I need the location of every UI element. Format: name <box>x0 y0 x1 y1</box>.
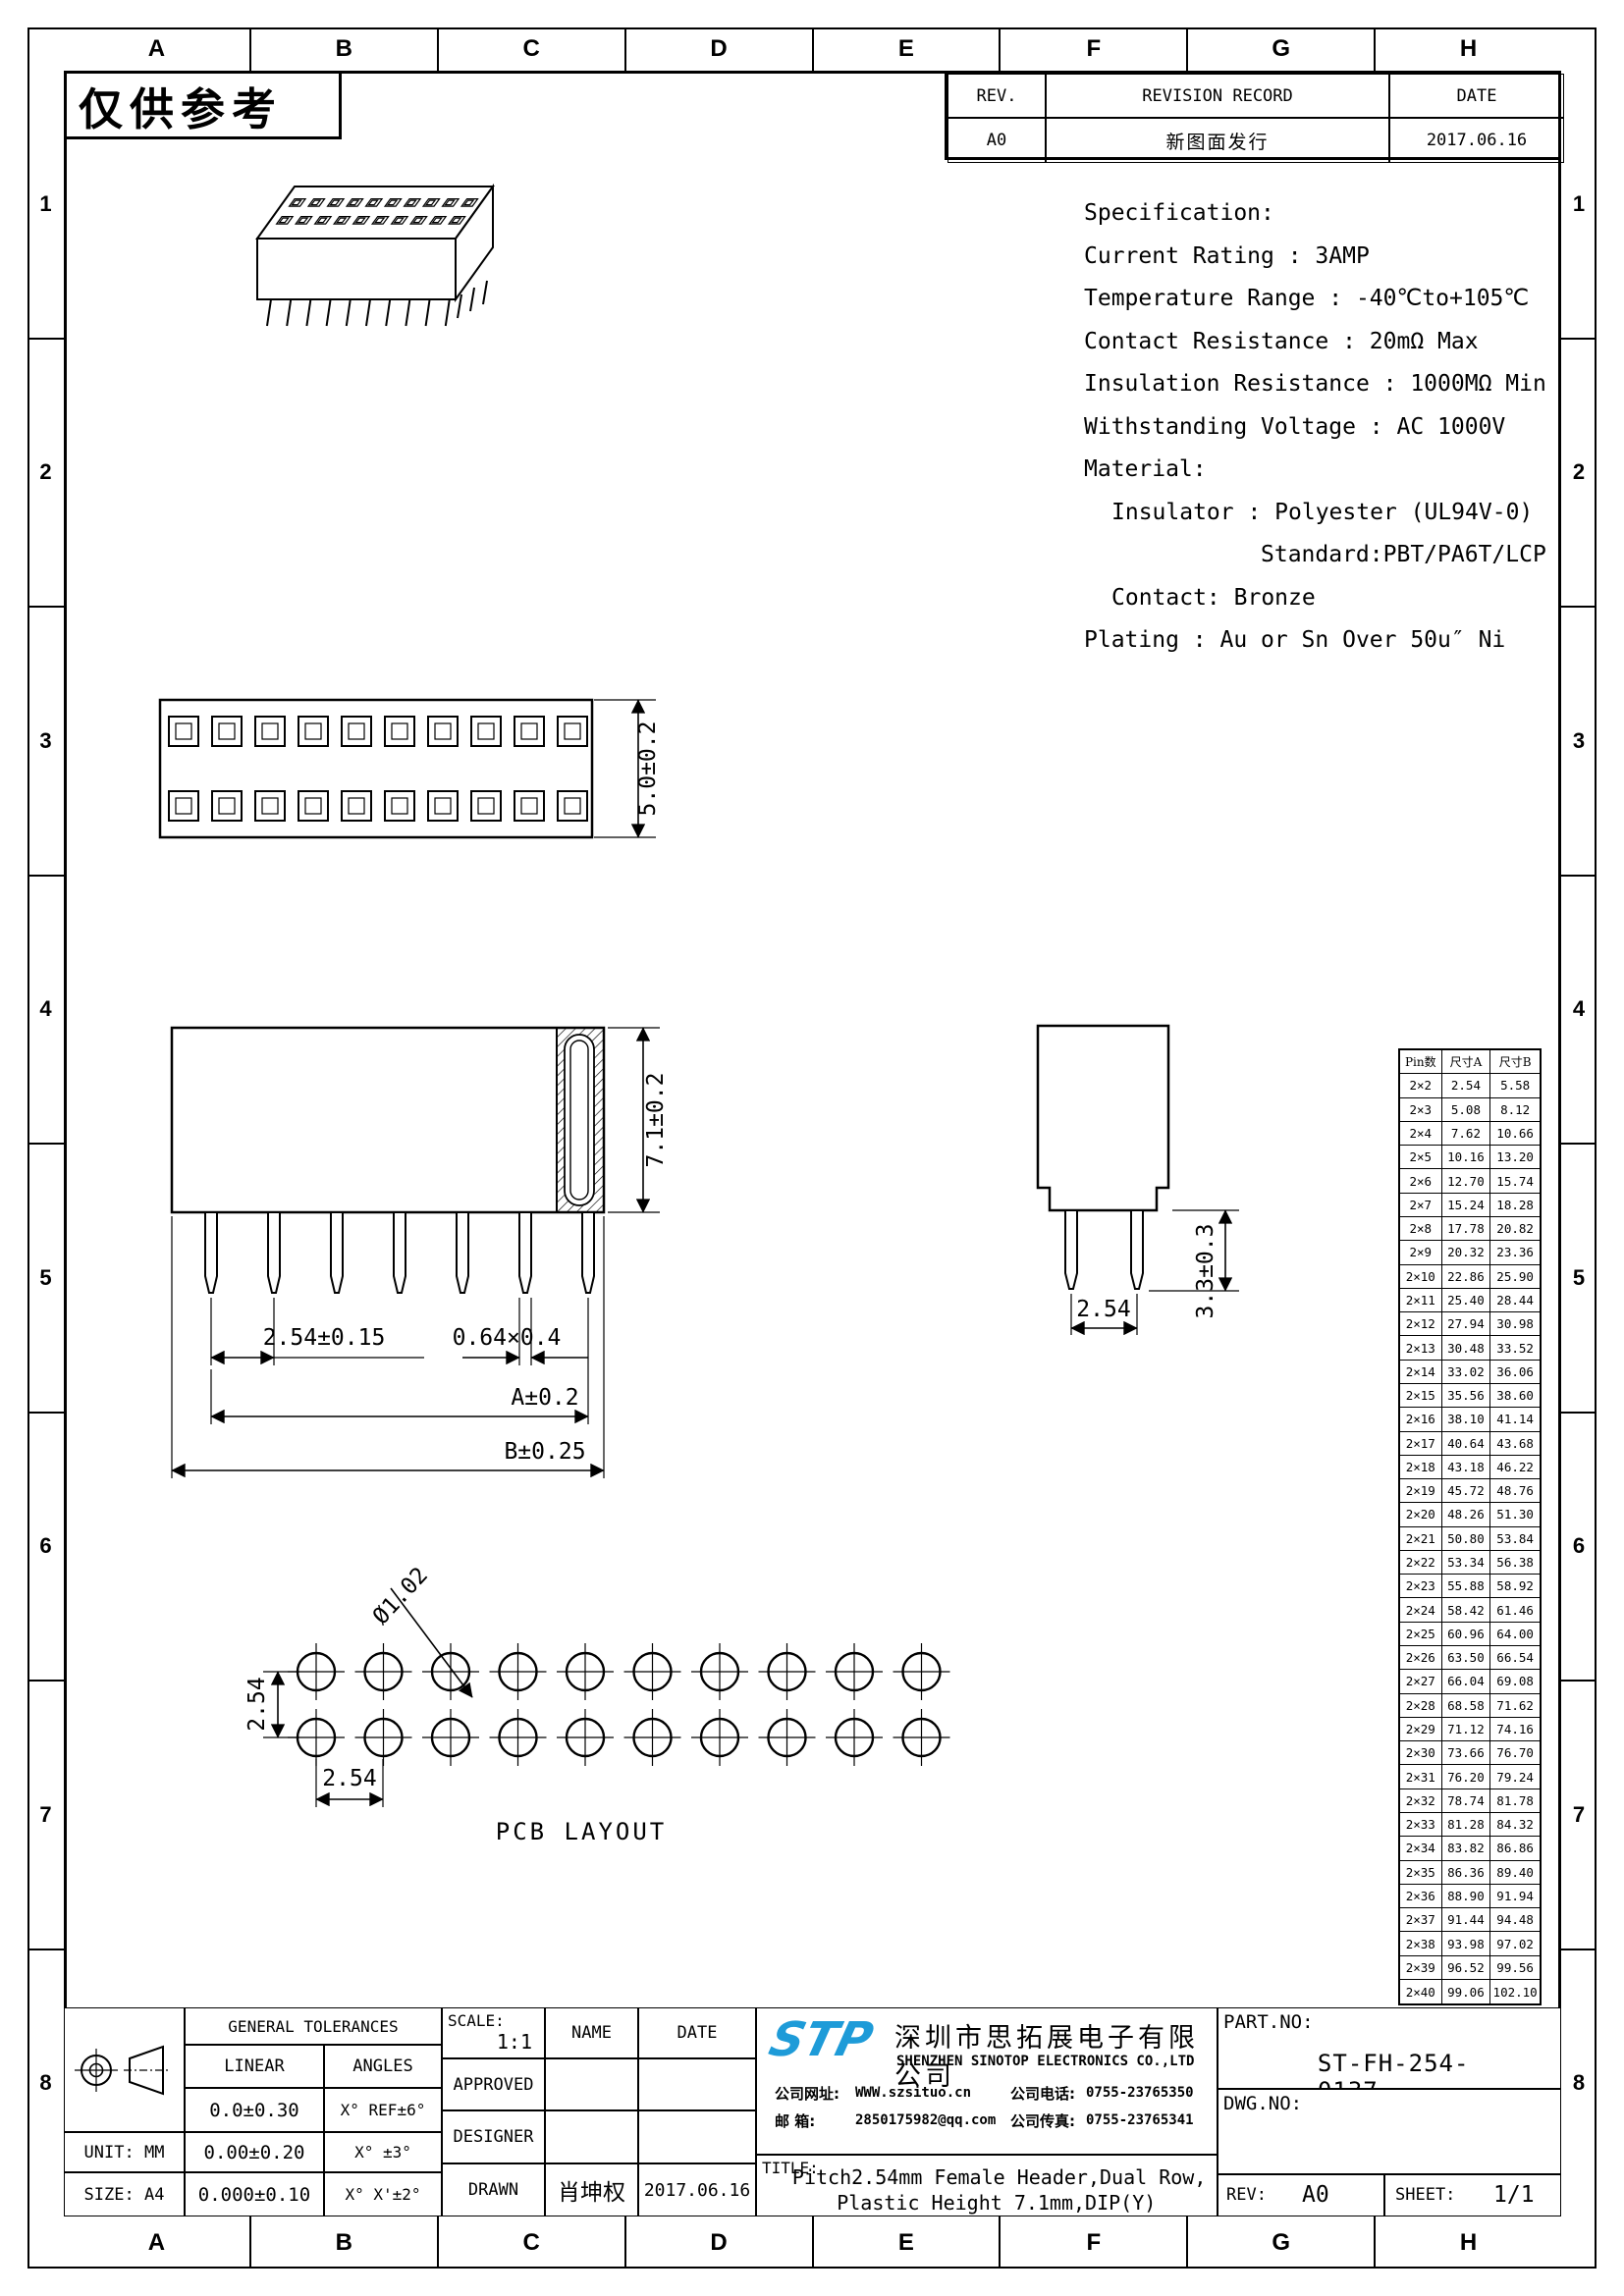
drawing-sheet: ABCDEFGH ABCDEFGH 12345678 12345678 仅供参考… <box>0 0 1624 2296</box>
front-section-view <box>172 1028 660 1478</box>
drawn-date: 2017.06.16 <box>638 2163 756 2216</box>
title-box: TITLE: Pitch2.54mm Female Header,Dual Ro… <box>756 2155 1218 2216</box>
pin-dimension-table: Pin数尺寸A尺寸B2×22.545.582×35.088.122×47.621… <box>1398 1048 1542 2005</box>
sheet-label: SHEET: <box>1395 2185 1455 2205</box>
dim-table-row: 2×1227.9430.98 <box>1400 1312 1540 1336</box>
company-block: STP 深圳市思拓展电子有限公司 SHENZHEN SINOTOP ELECTR… <box>756 2007 1218 2155</box>
dim-b: B±0.25 <box>504 1439 585 1465</box>
company-site-label: 公司网址: <box>775 2083 839 2104</box>
dwg-no-box: DWG.NO: <box>1218 2089 1561 2174</box>
top-view <box>160 700 656 837</box>
dim-table-row: 2×1022.8625.90 <box>1400 1265 1540 1289</box>
company-site: WWW.szsituo.cn <box>855 2085 971 2101</box>
size-label: SIZE: A4 <box>64 2172 185 2216</box>
unit-label: UNIT: MM <box>64 2132 185 2172</box>
part-no-label: PART.NO: <box>1223 2011 1314 2033</box>
dim-table-row: 2×3688.9091.94 <box>1400 1885 1540 1908</box>
part-no-box: PART.NO: ST-FH-254-0137 <box>1218 2007 1561 2089</box>
linear-header: LINEAR <box>185 2045 324 2088</box>
dim-pcb-col-pitch: 2.54 <box>322 1766 376 1791</box>
company-logo: STP <box>764 2012 878 2067</box>
dim-table-row: 2×1945.7248.76 <box>1400 1479 1540 1503</box>
drawn-label: DRAWN <box>442 2163 545 2216</box>
dim-table-row: 2×2458.4261.46 <box>1400 1598 1540 1622</box>
dim-table-row: 2×2663.5066.54 <box>1400 1646 1540 1670</box>
dim-table-row: 2×817.7820.82 <box>1400 1217 1540 1241</box>
dwg-no-label: DWG.NO: <box>1223 2093 1302 2114</box>
projection-symbol-cell <box>64 2007 185 2132</box>
dim-table-row: 2×2868.5871.62 <box>1400 1694 1540 1718</box>
designer-name-cell <box>545 2110 638 2163</box>
title-line2: Plastic Height 7.1mm,DIP(Y) <box>837 2191 1156 2215</box>
dim-a: A±0.2 <box>511 1385 578 1411</box>
approved-name-cell <box>545 2058 638 2110</box>
dim-pin-length: 3.3±0.3 <box>1193 1224 1218 1319</box>
tolerances-header: GENERAL TOLERANCES <box>185 2007 442 2045</box>
approved-label: APPROVED <box>442 2058 545 2110</box>
company-tel-label: 公司电话: <box>1010 2083 1075 2104</box>
scale-label: SCALE: <box>448 2011 505 2030</box>
dim-pitch: 2.54±0.15 <box>263 1325 386 1351</box>
dim-table-row: 2×3483.8286.86 <box>1400 1837 1540 1860</box>
dim-table-row: 2×1125.4028.44 <box>1400 1289 1540 1312</box>
pcb-layout-caption: PCB LAYOUT <box>496 1818 668 1845</box>
company-fax-label: 公司传真: <box>1010 2110 1075 2131</box>
scale-value: 1:1 <box>497 2030 532 2054</box>
rev-label: REV: <box>1226 2185 1267 2205</box>
dim-table-row: 2×510.1613.20 <box>1400 1146 1540 1169</box>
dim-table-row: 2×1330.4833.52 <box>1400 1336 1540 1360</box>
dim-side-pitch: 2.54 <box>1076 1297 1130 1322</box>
dim-table-row: 2×22.545.58 <box>1400 1074 1540 1097</box>
company-mail-label: 邮 箱: <box>775 2110 815 2131</box>
dim-table-row: 2×2355.8858.92 <box>1400 1575 1540 1598</box>
dim-table-row: 2×1638.1041.14 <box>1400 1408 1540 1431</box>
dim-table-header: Pin数尺寸A尺寸B <box>1400 1050 1540 1074</box>
tolerance-linear-2: 0.00±0.20 <box>185 2132 324 2172</box>
company-fax: 0755-23765341 <box>1086 2112 1194 2128</box>
sheet-box: SHEET: 1/1 <box>1384 2174 1561 2216</box>
dim-table-row: 2×3073.6676.70 <box>1400 1741 1540 1765</box>
dim-table-row: 2×2766.0469.08 <box>1400 1670 1540 1693</box>
dim-table-row: 2×3278.7481.78 <box>1400 1789 1540 1813</box>
dim-table-row: 2×3586.3689.40 <box>1400 1861 1540 1885</box>
rev-box: REV: A0 <box>1218 2174 1384 2216</box>
tolerance-angle-1: X° REF±6° <box>324 2088 442 2132</box>
dim-table-row: 2×47.6210.66 <box>1400 1122 1540 1146</box>
dim-table-row: 2×2048.2651.30 <box>1400 1503 1540 1526</box>
tolerance-linear-1: 0.0±0.30 <box>185 2088 324 2132</box>
isometric-view <box>257 187 493 326</box>
dim-table-row: 2×3176.2079.24 <box>1400 1765 1540 1789</box>
tolerance-angle-3: X° X'±2° <box>324 2172 442 2216</box>
designer-label: DESIGNER <box>442 2110 545 2163</box>
dim-table-row: 2×612.7015.74 <box>1400 1169 1540 1193</box>
approved-date-cell <box>638 2058 756 2110</box>
name-header: NAME <box>545 2007 638 2058</box>
technical-drawing-canvas <box>0 0 1624 2296</box>
designer-date-cell <box>638 2110 756 2163</box>
dim-table-row: 2×1740.6443.68 <box>1400 1432 1540 1456</box>
title-line1: Pitch2.54mm Female Header,Dual Row, <box>792 2165 1206 2189</box>
dim-table-row: 2×715.2418.28 <box>1400 1194 1540 1217</box>
tolerance-angle-2: X° ±3° <box>324 2132 442 2172</box>
company-mail: 2850175982@qq.com <box>855 2112 996 2128</box>
dim-table-row: 2×35.088.12 <box>1400 1098 1540 1122</box>
dim-table-row: 2×3893.9897.02 <box>1400 1932 1540 1955</box>
dim-body-height: 7.1±0.2 <box>643 1073 669 1168</box>
rev-value: A0 <box>1302 2182 1329 2208</box>
dim-table-row: 2×2253.3456.38 <box>1400 1551 1540 1575</box>
dim-table-row: 2×2971.1274.16 <box>1400 1718 1540 1741</box>
dim-pin-cross: 0.64×0.4 <box>453 1325 562 1351</box>
dim-table-row: 2×3791.4494.48 <box>1400 1908 1540 1932</box>
drawn-name: 肖坤权 <box>545 2163 638 2216</box>
tolerance-linear-3: 0.000±0.10 <box>185 2172 324 2216</box>
dim-table-row: 2×2560.9664.00 <box>1400 1623 1540 1646</box>
dim-table-row: 2×1843.1846.22 <box>1400 1456 1540 1479</box>
dim-pcb-row-pitch: 2.54 <box>244 1677 270 1731</box>
dim-table-row: 2×920.3223.36 <box>1400 1241 1540 1264</box>
dim-top-height: 5.0±0.2 <box>635 721 661 817</box>
scale-cell: SCALE: 1:1 <box>442 2007 545 2058</box>
dim-table-row: 2×4099.06102.10 <box>1400 1980 1540 2003</box>
sheet-value: 1/1 <box>1493 2182 1535 2208</box>
company-name-en: SHENZHEN SINOTOP ELECTRONICS CO.,LTD <box>896 2054 1194 2069</box>
third-angle-projection-icon <box>67 2011 183 2129</box>
dim-table-row: 2×1433.0236.06 <box>1400 1361 1540 1384</box>
date-header: DATE <box>638 2007 756 2058</box>
angles-header: ANGLES <box>324 2045 442 2088</box>
dim-table-row: 2×3381.2884.32 <box>1400 1813 1540 1837</box>
dim-table-row: 2×3996.5299.56 <box>1400 1956 1540 1980</box>
dim-table-row: 2×2150.8053.84 <box>1400 1527 1540 1551</box>
company-tel: 0755-23765350 <box>1086 2085 1194 2101</box>
dim-table-row: 2×1535.5638.60 <box>1400 1384 1540 1408</box>
